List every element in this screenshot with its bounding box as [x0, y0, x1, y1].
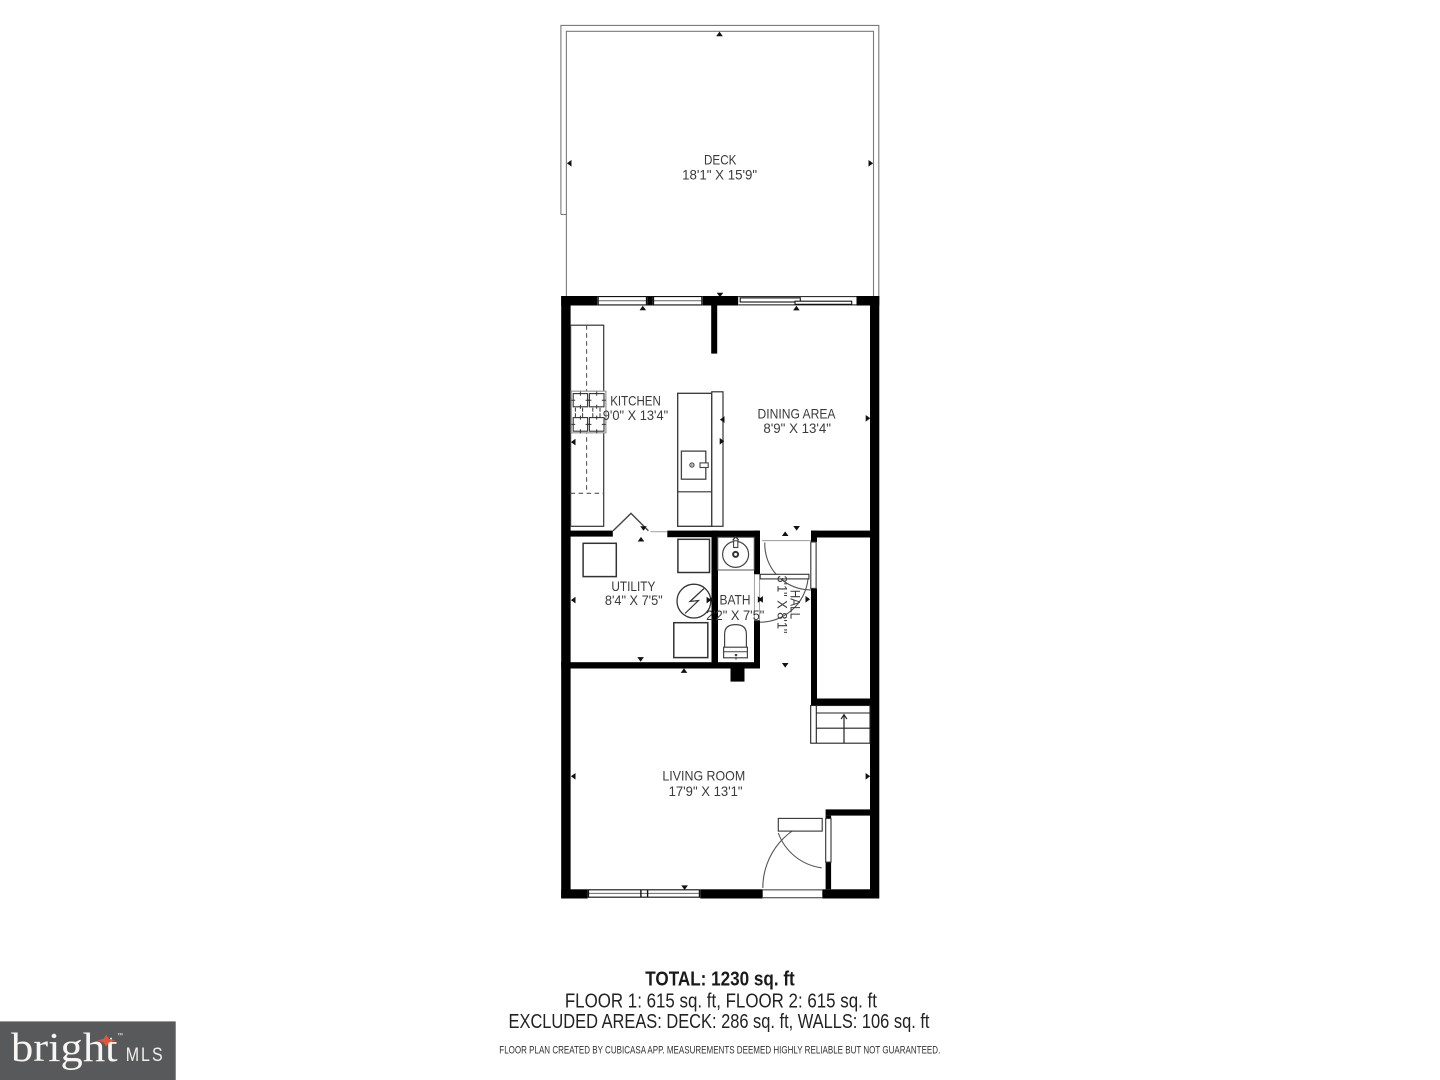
svg-text:DINING AREA: DINING AREA: [758, 407, 837, 422]
svg-text:18'1" X 15'9": 18'1" X 15'9": [682, 168, 757, 184]
svg-text:BATH: BATH: [720, 593, 751, 608]
svg-text:bright: bright: [11, 1024, 118, 1070]
svg-text:8'9" X 13'4": 8'9" X 13'4": [763, 421, 831, 437]
svg-text:2'2" X 7'5": 2'2" X 7'5": [706, 608, 764, 624]
svg-text:17'9" X 13'1": 17'9" X 13'1": [669, 784, 743, 800]
svg-text:™: ™: [117, 1032, 123, 1039]
svg-text:KITCHEN: KITCHEN: [610, 393, 661, 408]
svg-text:FLOOR PLAN CREATED BY CUBICASA: FLOOR PLAN CREATED BY CUBICASA APP. MEAS…: [499, 1044, 940, 1056]
svg-text:LIVING ROOM: LIVING ROOM: [662, 768, 745, 783]
svg-text:8'4" X 7'5": 8'4" X 7'5": [605, 593, 663, 609]
svg-text:9'0" X 13'4": 9'0" X 13'4": [603, 408, 668, 424]
svg-text:MLS: MLS: [126, 1044, 165, 1066]
svg-text:3'1" X 8'1": 3'1" X 8'1": [774, 576, 790, 634]
svg-text:UTILITY: UTILITY: [611, 579, 655, 594]
svg-text:FLOOR 1: 615 sq. ft, FLOOR 2:: FLOOR 1: 615 sq. ft, FLOOR 2: 615 sq. ft: [565, 991, 877, 1013]
svg-text:DECK: DECK: [704, 152, 737, 167]
svg-text:EXCLUDED AREAS: DECK: 286 sq.: EXCLUDED AREAS: DECK: 286 sq. ft, WALLS:…: [509, 1011, 930, 1033]
svg-text:TOTAL: 1230 sq. ft: TOTAL: 1230 sq. ft: [645, 969, 795, 991]
